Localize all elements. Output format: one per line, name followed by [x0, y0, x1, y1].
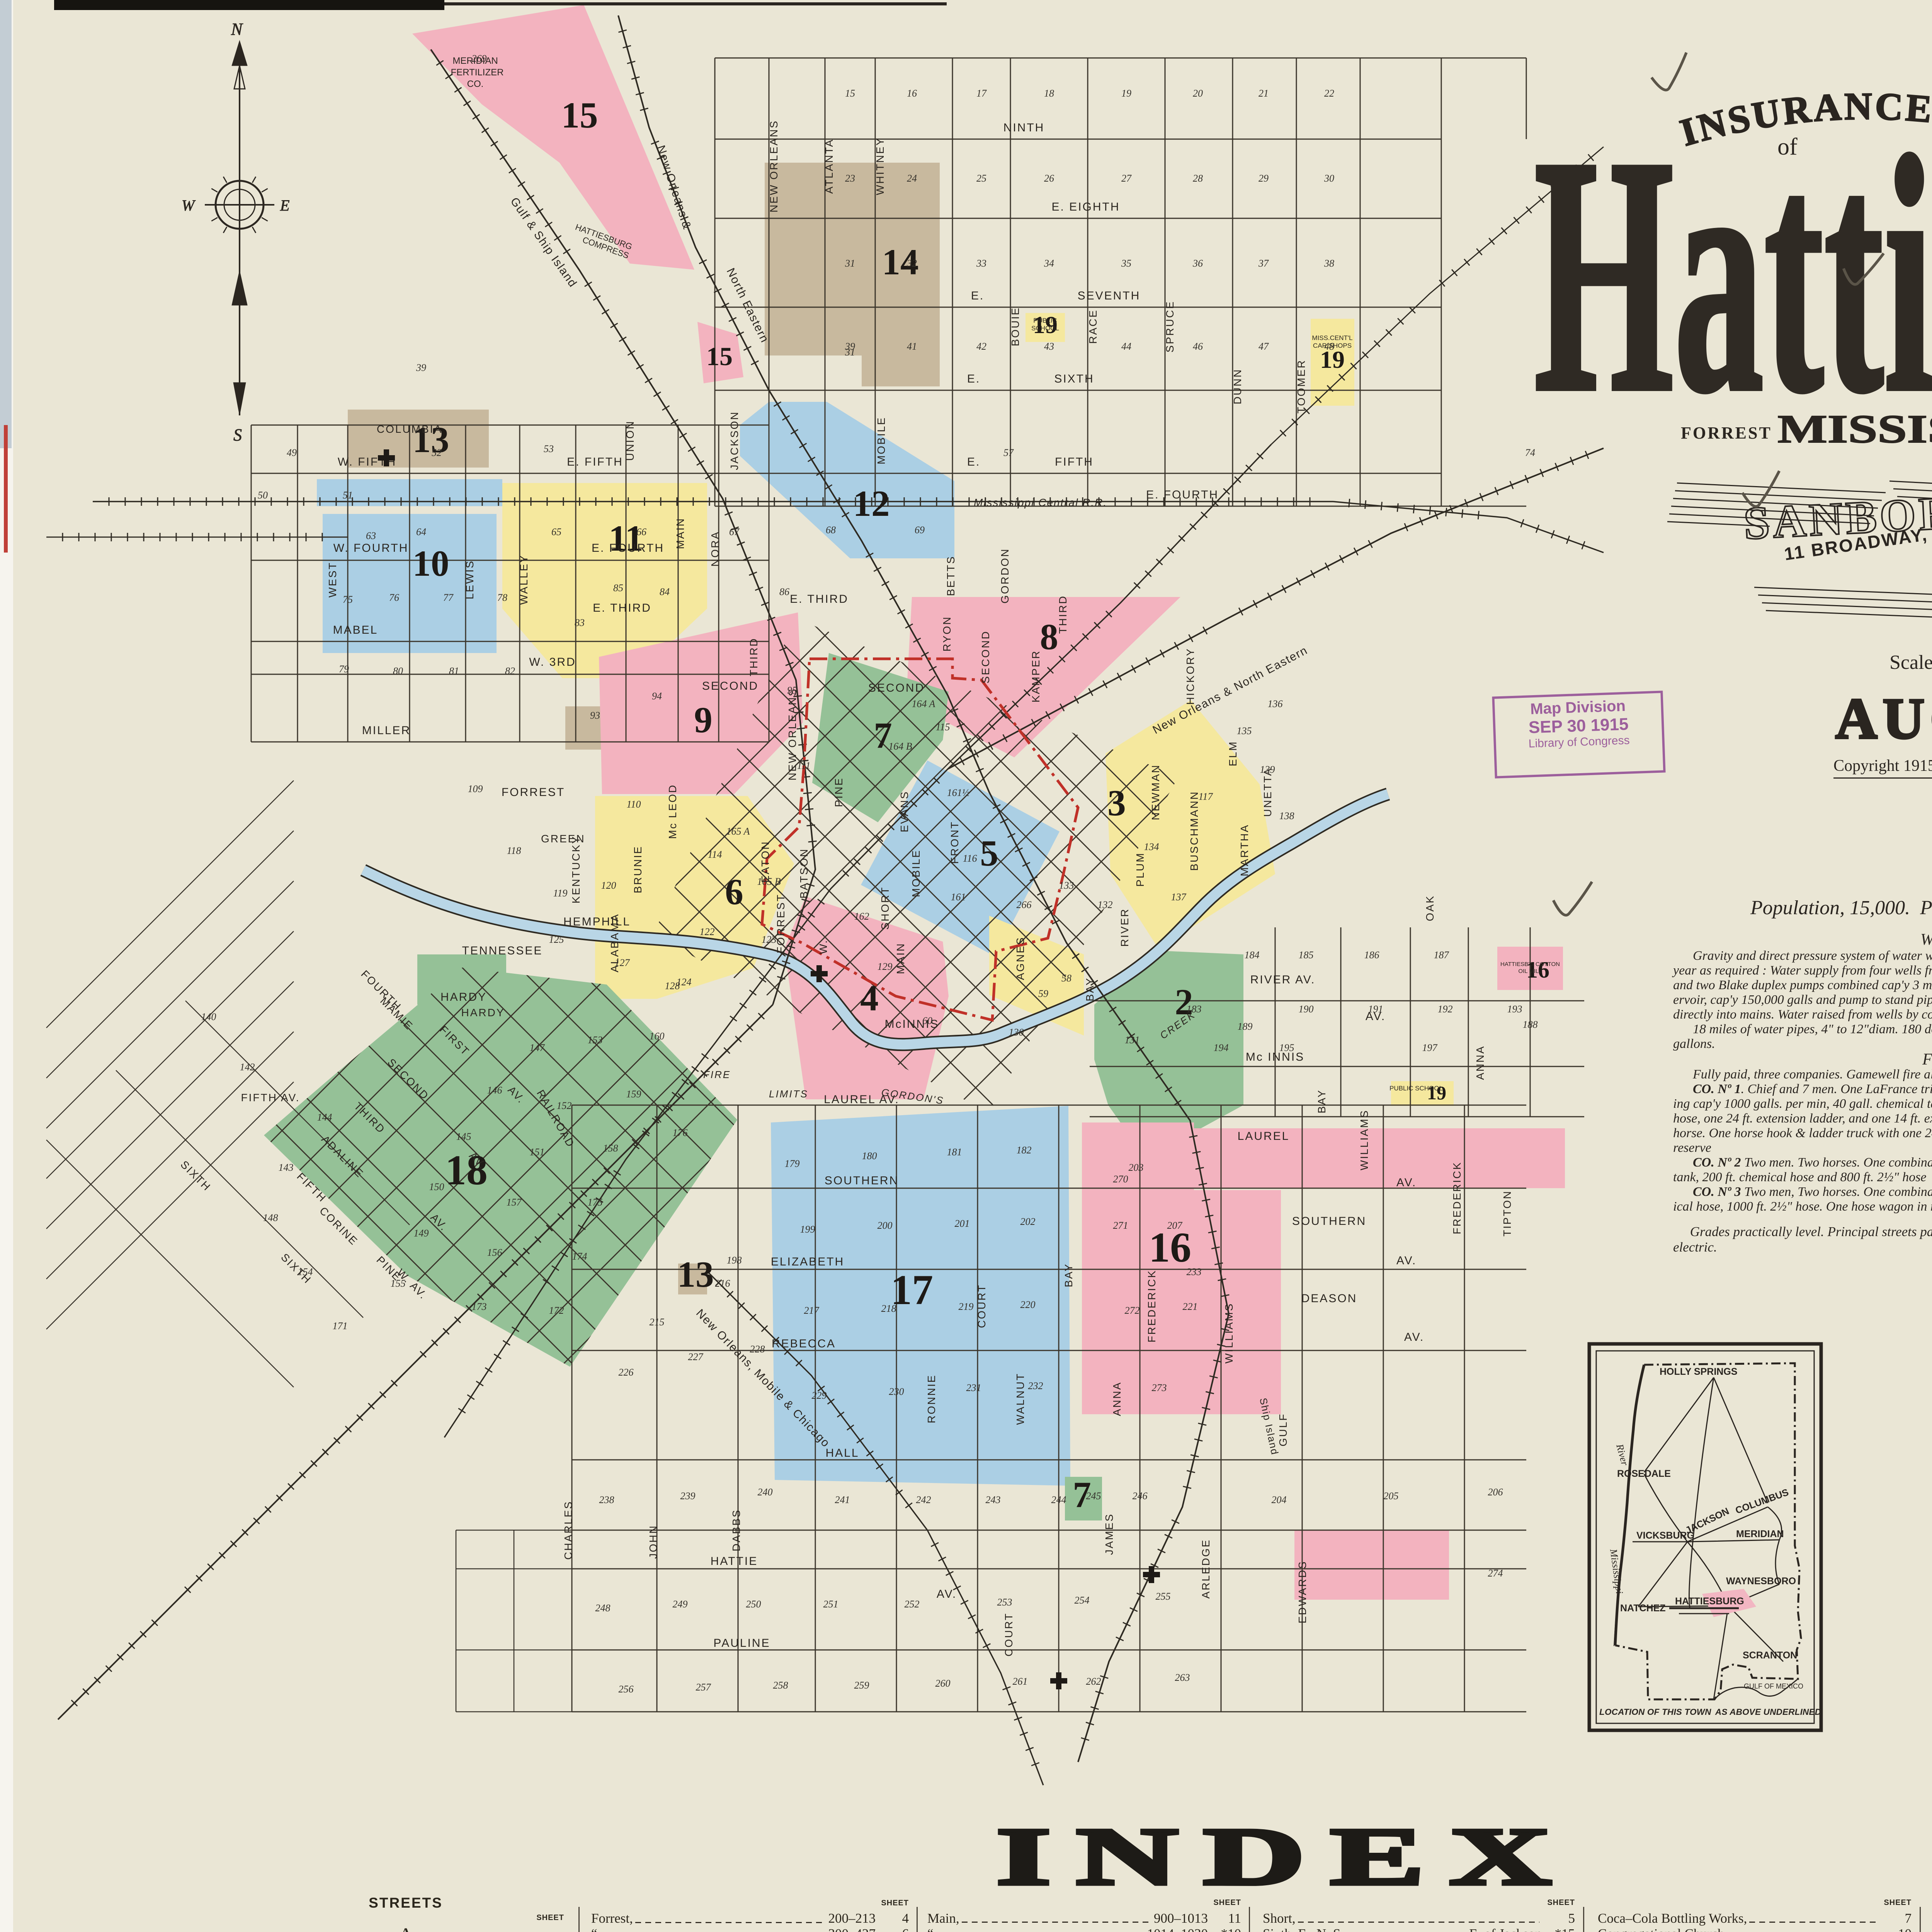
svg-text:191: 191 [1368, 1003, 1383, 1015]
svg-text:85: 85 [613, 582, 623, 594]
svg-text:157: 157 [507, 1197, 522, 1208]
svg-text:ELIZABETH: ELIZABETH [771, 1255, 844, 1268]
svg-text:PINE: PINE [833, 777, 845, 807]
svg-text:132: 132 [1098, 899, 1113, 910]
svg-text:DABBS: DABBS [730, 1509, 742, 1551]
svg-text:ANNA: ANNA [1111, 1381, 1123, 1416]
svg-text:23: 23 [845, 173, 855, 184]
svg-text:245: 245 [1086, 1490, 1101, 1502]
svg-text:FREDERICK: FREDERICK [1146, 1270, 1158, 1343]
svg-text:WHITNEY: WHITNEY [874, 137, 886, 195]
svg-text:EVANS: EVANS [898, 791, 910, 832]
svg-text:52: 52 [432, 447, 442, 458]
svg-text:NEWMAN: NEWMAN [1150, 764, 1162, 820]
svg-text:SECOND: SECOND [980, 630, 992, 684]
svg-text:17: 17 [891, 1266, 933, 1313]
svg-text:MILLER: MILLER [362, 724, 411, 737]
svg-text:16: 16 [907, 88, 917, 99]
svg-text:THIRD: THIRD [1057, 595, 1069, 634]
svg-text:41: 41 [907, 341, 917, 352]
svg-text:PUBLIC: PUBLIC [1033, 317, 1057, 324]
svg-text:136: 136 [1268, 698, 1283, 709]
svg-text:SECOND: SECOND [702, 680, 759, 692]
svg-text:151: 151 [530, 1146, 545, 1158]
svg-text:58: 58 [1061, 973, 1071, 984]
svg-text:E. THIRD: E. THIRD [790, 593, 849, 605]
svg-text:74: 74 [1525, 447, 1535, 458]
svg-text:FIRE: FIRE [703, 1069, 731, 1080]
svg-text:149: 149 [414, 1228, 429, 1239]
svg-text:E. FOURTH: E. FOURTH [1146, 488, 1219, 501]
svg-text:152: 152 [557, 1100, 572, 1111]
svg-text:49: 49 [287, 447, 297, 458]
svg-text:E. THIRD: E. THIRD [593, 602, 651, 614]
svg-text:SCRANTON: SCRANTON [1743, 1650, 1797, 1661]
svg-text:238: 238 [599, 1494, 614, 1505]
svg-text:187: 187 [1434, 949, 1449, 961]
svg-text:207: 207 [1167, 1220, 1183, 1231]
svg-text:262: 262 [1086, 1676, 1101, 1687]
svg-text:206: 206 [1488, 1486, 1503, 1498]
svg-text:TOOMER: TOOMER [1295, 359, 1307, 413]
svg-text:AV.: AV. [1396, 1254, 1417, 1267]
svg-text:248: 248 [595, 1602, 611, 1614]
svg-text:35: 35 [1121, 258, 1131, 269]
svg-text:201: 201 [955, 1218, 970, 1229]
svg-text:260: 260 [935, 1678, 951, 1689]
svg-text:HATTIESBURG: HATTIESBURG [1675, 1596, 1744, 1607]
svg-text:84: 84 [660, 586, 670, 597]
svg-text:N: N [231, 20, 243, 39]
svg-text:WAYNESBORO: WAYNESBORO [1726, 1576, 1796, 1587]
svg-text:192: 192 [1438, 1003, 1453, 1015]
svg-text:ARLEDGE: ARLEDGE [1200, 1539, 1212, 1599]
svg-text:AGNES: AGNES [1014, 936, 1026, 980]
svg-text:68: 68 [826, 524, 836, 536]
svg-text:64: 64 [416, 526, 426, 537]
svg-text:HICKORY: HICKORY [1184, 648, 1196, 705]
svg-text:116: 116 [963, 853, 977, 864]
svg-text:118: 118 [507, 845, 521, 856]
svg-text:194: 194 [1214, 1042, 1229, 1053]
svg-text:17: 17 [976, 88, 987, 99]
svg-text:182: 182 [1017, 1145, 1032, 1156]
svg-text:GREEN: GREEN [541, 833, 585, 845]
svg-text:NATCHEZ: NATCHEZ [1620, 1603, 1666, 1614]
svg-text:JACKSON: JACKSON [728, 411, 740, 470]
svg-text:135: 135 [1237, 725, 1252, 736]
svg-text:172: 172 [549, 1305, 564, 1316]
svg-text:129: 129 [878, 961, 893, 972]
svg-text:130: 130 [1009, 1027, 1024, 1038]
svg-text:227: 227 [688, 1351, 704, 1362]
svg-text:117: 117 [1198, 791, 1213, 802]
svg-text:MOBILE: MOBILE [910, 849, 922, 897]
svg-text:BRUNIE: BRUNIE [632, 845, 644, 893]
svg-text:COURT: COURT [1003, 1612, 1015, 1656]
svg-text:76: 76 [389, 592, 399, 603]
svg-text:HARDY: HARDY [440, 991, 487, 1003]
svg-text:263: 263 [1175, 1672, 1190, 1683]
svg-text:HATTIESB'G COTTON: HATTIESB'G COTTON [1500, 961, 1560, 968]
svg-text:146: 146 [487, 1085, 502, 1096]
svg-text:240: 240 [758, 1486, 773, 1498]
svg-text:SOUTHERN: SOUTHERN [825, 1174, 899, 1187]
svg-text:AUG. 1915: AUG. 1915 [1835, 687, 1932, 751]
svg-text:153: 153 [588, 1034, 603, 1046]
svg-text:79: 79 [339, 663, 349, 675]
svg-text:HALL: HALL [825, 1447, 859, 1459]
svg-text:OIL MILL: OIL MILL [1518, 968, 1542, 975]
svg-text:60: 60 [922, 1015, 932, 1026]
svg-text:137: 137 [1171, 891, 1187, 903]
svg-text:29: 29 [1259, 173, 1269, 184]
svg-text:258: 258 [773, 1680, 788, 1691]
svg-text:59: 59 [1038, 988, 1048, 999]
svg-text:COURT: COURT [976, 1284, 988, 1328]
svg-text:FORREST: FORREST [775, 894, 787, 954]
svg-text:75: 75 [343, 594, 353, 605]
svg-text:86: 86 [779, 586, 789, 597]
svg-text:24: 24 [907, 173, 917, 184]
svg-text:BAY: BAY [1063, 1263, 1075, 1287]
svg-text:Gulf & Ship Island: Gulf & Ship Island [508, 195, 579, 290]
svg-text:WILLIAMS: WILLIAMS [1223, 1303, 1235, 1364]
svg-text:SIXTH: SIXTH [178, 1158, 213, 1194]
svg-text:114: 114 [707, 849, 722, 860]
svg-text:203: 203 [1129, 1162, 1144, 1173]
svg-text:DUNN: DUNN [1231, 369, 1243, 405]
svg-text:57: 57 [1003, 447, 1014, 458]
svg-text:GULF OF MEXICO: GULF OF MEXICO [1744, 1682, 1803, 1690]
svg-text:250: 250 [746, 1599, 761, 1610]
svg-text:205: 205 [1384, 1490, 1399, 1502]
svg-text:AV.: AV. [1404, 1331, 1424, 1344]
svg-text:67: 67 [729, 526, 740, 537]
svg-text:32: 32 [906, 258, 917, 269]
svg-text:200: 200 [878, 1220, 893, 1231]
svg-text:EDWARDS: EDWARDS [1296, 1560, 1308, 1623]
svg-text:E.: E. [971, 289, 984, 302]
svg-text:255: 255 [1156, 1591, 1171, 1602]
svg-text:272: 272 [1125, 1305, 1140, 1316]
svg-text:261: 261 [1013, 1676, 1028, 1687]
svg-text:GORDON: GORDON [999, 548, 1011, 604]
svg-text:232: 232 [1028, 1380, 1043, 1391]
svg-text:145: 145 [456, 1131, 471, 1142]
svg-text:241: 241 [835, 1494, 850, 1505]
svg-text:38: 38 [1324, 258, 1334, 269]
svg-text:FIFTH AV.: FIFTH AV. [241, 1092, 300, 1104]
svg-text:127: 127 [615, 957, 630, 968]
svg-text:W. FOURTH: W. FOURTH [333, 542, 409, 554]
svg-text:River: River [1614, 1442, 1631, 1467]
svg-text:216: 216 [715, 1278, 730, 1289]
svg-text:DEASON: DEASON [1301, 1292, 1357, 1305]
svg-text:BETTS: BETTS [945, 555, 957, 596]
svg-text:183: 183 [1187, 1003, 1202, 1015]
svg-text:138: 138 [1279, 810, 1294, 821]
svg-text:218: 218 [881, 1303, 896, 1314]
svg-text:215: 215 [650, 1316, 665, 1328]
svg-text:WALNUT: WALNUT [1014, 1372, 1026, 1425]
svg-text:31: 31 [845, 258, 855, 269]
svg-text:173: 173 [472, 1301, 487, 1312]
svg-text:202: 202 [1020, 1216, 1036, 1227]
svg-text:231: 231 [966, 1382, 981, 1393]
svg-text:190: 190 [1299, 1003, 1314, 1015]
svg-text:120: 120 [601, 880, 616, 891]
svg-text:226: 226 [619, 1367, 634, 1378]
svg-text:FREDERICK: FREDERICK [1451, 1162, 1463, 1235]
svg-text:217: 217 [804, 1305, 820, 1316]
svg-text:134: 134 [1144, 841, 1159, 852]
svg-text:HATTIE: HATTIE [711, 1555, 758, 1568]
svg-text:Mc LEOD: Mc LEOD [667, 784, 679, 839]
svg-text:RYON: RYON [941, 616, 953, 651]
svg-text:WALLEY: WALLEY [518, 554, 530, 605]
svg-text:INDEX: INDEX [996, 1811, 1577, 1901]
svg-text:30: 30 [1324, 173, 1334, 184]
svg-text:233: 233 [1187, 1266, 1202, 1277]
svg-text:E. FIFTH: E. FIFTH [567, 456, 623, 468]
svg-text:JAMES: JAMES [1103, 1513, 1115, 1555]
svg-text:115: 115 [935, 721, 950, 733]
svg-text:WILLIAMS: WILLIAMS [1358, 1109, 1370, 1170]
svg-text:93: 93 [590, 710, 600, 721]
svg-text:110: 110 [626, 799, 641, 810]
svg-text:46: 46 [1193, 341, 1203, 352]
svg-text:MISSISSIPPI: MISSISSIPPI [1777, 407, 1932, 451]
svg-text:RACE: RACE [1087, 309, 1099, 344]
svg-text:254: 254 [1075, 1595, 1090, 1606]
svg-text:161: 161 [951, 891, 966, 903]
svg-text:42: 42 [976, 341, 986, 352]
svg-text:252: 252 [905, 1599, 920, 1610]
svg-text:4: 4 [860, 978, 879, 1019]
svg-text:181: 181 [947, 1146, 962, 1158]
svg-text:SCHOOL: SCHOOL [1031, 325, 1059, 332]
svg-text:81: 81 [449, 665, 459, 677]
svg-text:144: 144 [317, 1112, 332, 1123]
svg-text:3: 3 [1107, 782, 1126, 823]
svg-text:133: 133 [1059, 880, 1074, 891]
svg-text:69: 69 [915, 524, 925, 536]
svg-text:6: 6 [725, 871, 743, 912]
svg-text:MERIDIAN: MERIDIAN [1736, 1529, 1784, 1539]
svg-text:33: 33 [976, 258, 986, 269]
svg-text:228: 228 [750, 1344, 765, 1355]
svg-text:W: W [182, 197, 196, 214]
svg-text:122: 122 [700, 926, 715, 937]
svg-text:142: 142 [240, 1061, 255, 1073]
svg-text:ANNA: ANNA [1474, 1045, 1486, 1080]
svg-text:197: 197 [1422, 1042, 1438, 1053]
svg-text:175: 175 [588, 1197, 603, 1208]
svg-text:21: 21 [1259, 88, 1269, 99]
svg-text:95: 95 [787, 685, 797, 696]
svg-text:83: 83 [575, 617, 585, 628]
svg-text:43: 43 [1044, 341, 1054, 352]
svg-text:154: 154 [298, 1266, 313, 1277]
svg-text:FIFTH: FIFTH [1055, 456, 1094, 468]
svg-text:50: 50 [258, 490, 268, 501]
svg-text:W. 3RD: W. 3RD [529, 656, 576, 668]
svg-text:REBECCA: REBECCA [772, 1337, 836, 1350]
svg-text:JOHN: JOHN [647, 1525, 659, 1559]
svg-text:HARDY: HARDY [461, 1007, 505, 1019]
svg-text:Mississippi Central R.R.: Mississippi Central R.R. [974, 497, 1107, 509]
svg-text:CHARLES: CHARLES [562, 1500, 574, 1560]
svg-text:256: 256 [619, 1684, 634, 1695]
svg-text:SPRUCE: SPRUCE [1164, 301, 1176, 353]
svg-text:25: 25 [976, 173, 986, 184]
svg-text:SHORT: SHORT [879, 886, 891, 930]
svg-text:111: 111 [797, 760, 810, 771]
svg-text:269: 269 [472, 53, 487, 64]
svg-text:NEW ORLEANS: NEW ORLEANS [768, 120, 780, 213]
svg-text:158: 158 [603, 1143, 618, 1154]
svg-text:E: E [280, 197, 289, 214]
svg-text:SIXTH: SIXTH [1054, 372, 1094, 385]
svg-text:189: 189 [1238, 1021, 1253, 1032]
svg-text:NEW ORLEANS: NEW ORLEANS [786, 688, 798, 781]
svg-text:BOUIE: BOUIE [1009, 307, 1021, 346]
svg-text:186: 186 [1364, 949, 1379, 961]
svg-text:65: 65 [551, 526, 561, 537]
svg-text:229: 229 [812, 1390, 827, 1401]
svg-text:82: 82 [505, 665, 515, 677]
svg-text:34: 34 [1044, 258, 1054, 269]
svg-text:160: 160 [650, 1031, 665, 1042]
svg-text:219: 219 [959, 1301, 974, 1312]
svg-text:148: 148 [263, 1212, 278, 1223]
svg-text:CO.: CO. [467, 79, 484, 89]
svg-text:LOCATION OF THIS TOWN AS ABOV: LOCATION OF THIS TOWN AS ABOVE UNDERLINE… [1599, 1707, 1821, 1717]
svg-text:37: 37 [1258, 258, 1269, 269]
svg-text:44: 44 [1121, 341, 1131, 352]
svg-text:BATSON: BATSON [798, 848, 810, 898]
svg-text:OAK: OAK [1424, 895, 1436, 921]
svg-text:PAULINE: PAULINE [713, 1637, 770, 1650]
svg-text:274: 274 [1488, 1568, 1503, 1579]
svg-text:78: 78 [497, 592, 507, 603]
svg-text:NORA: NORA [709, 531, 721, 567]
svg-text:161½: 161½ [947, 787, 970, 798]
svg-text:193: 193 [1507, 1003, 1522, 1015]
svg-text:UNION: UNION [624, 420, 636, 461]
svg-text:10: 10 [413, 543, 449, 584]
svg-text:S: S [233, 425, 242, 444]
svg-text:179: 179 [785, 1158, 800, 1169]
svg-text:119: 119 [553, 888, 567, 899]
svg-text:ELM: ELM [1227, 741, 1239, 767]
svg-text:221: 221 [1183, 1301, 1198, 1312]
svg-text:AV.: AV. [937, 1588, 957, 1600]
svg-text:TIPTON: TIPTON [1501, 1190, 1513, 1236]
svg-text:13: 13 [677, 1254, 714, 1295]
svg-text:48: 48 [1324, 341, 1334, 352]
svg-text:22: 22 [1324, 88, 1334, 99]
svg-text:ROSEDALE: ROSEDALE [1617, 1468, 1671, 1479]
svg-text:MOBILE: MOBILE [875, 417, 887, 464]
svg-text:MAIN: MAIN [674, 517, 686, 549]
svg-text:20: 20 [1193, 88, 1203, 99]
svg-text:140: 140 [201, 1011, 216, 1022]
svg-text:184: 184 [1245, 949, 1260, 961]
svg-text:188: 188 [1523, 1019, 1538, 1030]
svg-text:164 B: 164 B [888, 741, 912, 752]
svg-text:246: 246 [1133, 1490, 1148, 1502]
svg-text:E.: E. [967, 372, 980, 385]
svg-text:273: 273 [1152, 1382, 1167, 1393]
svg-text:MAIN: MAIN [895, 942, 906, 974]
svg-text:BAY: BAY [1316, 1089, 1328, 1114]
svg-text:77: 77 [443, 592, 454, 603]
svg-text:FORREST: FORREST [502, 786, 565, 799]
svg-text:266: 266 [1017, 899, 1032, 910]
svg-text:PUBLIC SCHOOL: PUBLIC SCHOOL [1389, 1085, 1443, 1092]
svg-text:198: 198 [727, 1255, 742, 1266]
svg-text:162: 162 [854, 911, 869, 922]
svg-text:123: 123 [762, 934, 777, 945]
svg-text:143: 143 [279, 1162, 294, 1173]
svg-text:18: 18 [1044, 88, 1054, 99]
svg-text:E. EIGHTH: E. EIGHTH [1051, 201, 1120, 213]
svg-text:12: 12 [853, 483, 890, 524]
svg-text:94: 94 [652, 690, 662, 702]
svg-text:E.: E. [967, 456, 980, 468]
svg-text:47: 47 [1259, 341, 1269, 352]
svg-text:8: 8 [1040, 616, 1058, 657]
svg-text:THIRD: THIRD [748, 638, 760, 677]
svg-text:164 A: 164 A [912, 698, 935, 709]
svg-text:COLUMBUS: COLUMBUS [1734, 1487, 1790, 1516]
svg-text:125: 125 [549, 934, 564, 945]
svg-text:W.: W. [817, 939, 829, 954]
svg-text:LIMITS: LIMITS [769, 1088, 808, 1100]
svg-text:36: 36 [1192, 258, 1203, 269]
svg-text:GULF: GULF [1277, 1413, 1289, 1447]
svg-text:253: 253 [997, 1597, 1012, 1608]
svg-text:5: 5 [980, 833, 998, 874]
svg-text:FERTILIZER: FERTILIZER [451, 67, 504, 78]
svg-text:LEWIS: LEWIS [464, 560, 476, 599]
svg-text:259: 259 [854, 1680, 869, 1691]
svg-text:RONNIE: RONNIE [925, 1374, 937, 1423]
svg-text:RIVER: RIVER [1119, 908, 1131, 947]
svg-text:15: 15 [561, 95, 598, 136]
svg-text:159: 159 [626, 1088, 641, 1100]
svg-text:WEST: WEST [327, 562, 338, 598]
svg-text:171: 171 [333, 1320, 348, 1332]
svg-text:BUSCHMANN: BUSCHMANN [1188, 791, 1200, 871]
svg-text:185: 185 [1299, 949, 1314, 961]
svg-text:TENNESSEE: TENNESSEE [462, 944, 543, 957]
svg-text:JACKSON: JACKSON [1684, 1506, 1731, 1536]
svg-text:MABEL: MABEL [333, 624, 378, 636]
svg-text:39: 39 [416, 362, 426, 373]
svg-text:26: 26 [1044, 173, 1054, 184]
svg-text:80: 80 [393, 665, 403, 677]
svg-text:195: 195 [1279, 1042, 1294, 1053]
svg-text:COLUMBIA: COLUMBIA [377, 423, 442, 435]
svg-text:230: 230 [889, 1386, 904, 1397]
svg-text:199: 199 [800, 1224, 815, 1235]
svg-text:SECOND: SECOND [868, 682, 925, 694]
svg-text:270: 270 [1113, 1173, 1128, 1185]
svg-text:RIVER AV.: RIVER AV. [1250, 973, 1316, 986]
